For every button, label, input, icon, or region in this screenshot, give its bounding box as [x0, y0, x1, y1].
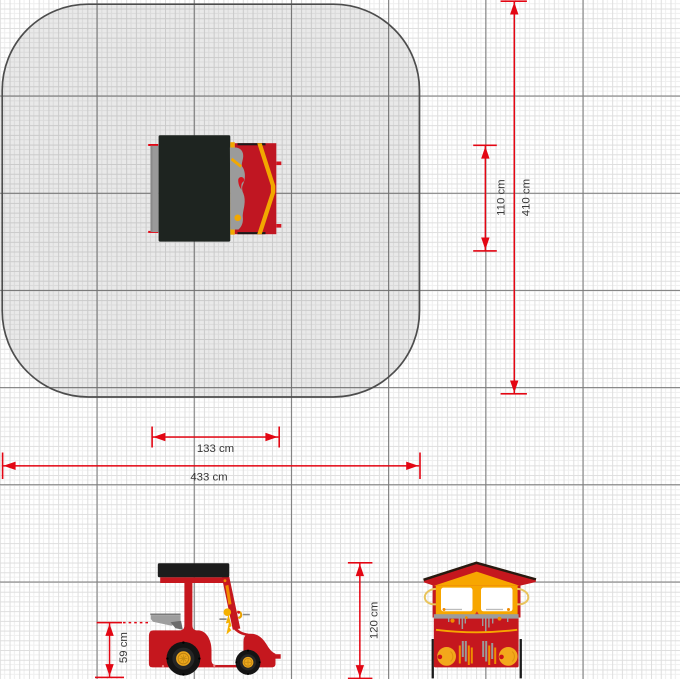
svg-text:433 cm: 433 cm	[190, 472, 227, 484]
svg-text:410 cm: 410 cm	[520, 179, 532, 216]
svg-text:59 cm: 59 cm	[118, 632, 130, 663]
svg-text:120 cm: 120 cm	[368, 602, 380, 639]
svg-text:133 cm: 133 cm	[197, 443, 234, 455]
svg-text:110 cm: 110 cm	[496, 179, 508, 216]
